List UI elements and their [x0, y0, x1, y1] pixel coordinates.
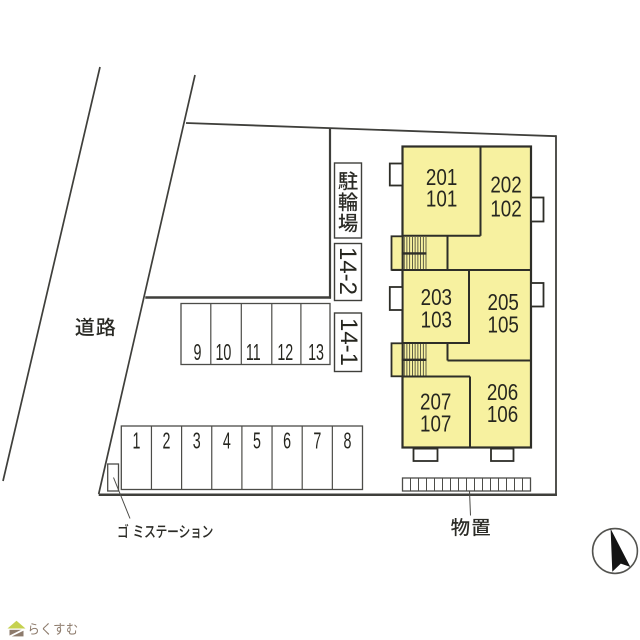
svg-text:103: 103 [421, 307, 452, 334]
svg-text:101: 101 [426, 185, 457, 212]
svg-text:7: 7 [313, 429, 321, 454]
svg-text:102: 102 [490, 195, 521, 222]
svg-text:105: 105 [488, 312, 519, 339]
svg-text:5: 5 [253, 429, 261, 454]
svg-text:3: 3 [193, 429, 201, 454]
svg-text:11: 11 [246, 341, 261, 366]
svg-text:202: 202 [490, 172, 521, 199]
svg-text:1: 1 [132, 429, 140, 454]
svg-text:4: 4 [223, 429, 231, 454]
svg-text:106: 106 [487, 401, 518, 428]
svg-text:107: 107 [420, 410, 451, 437]
svg-text:2: 2 [163, 429, 171, 454]
svg-text:8: 8 [343, 429, 351, 454]
svg-text:14-1: 14-1 [335, 318, 362, 366]
svg-text:9: 9 [194, 341, 202, 366]
svg-text:10: 10 [215, 341, 231, 366]
svg-text:13: 13 [308, 341, 324, 366]
svg-text:14-2: 14-2 [334, 247, 361, 295]
svg-text:12: 12 [277, 341, 293, 366]
svg-text:6: 6 [283, 429, 291, 454]
